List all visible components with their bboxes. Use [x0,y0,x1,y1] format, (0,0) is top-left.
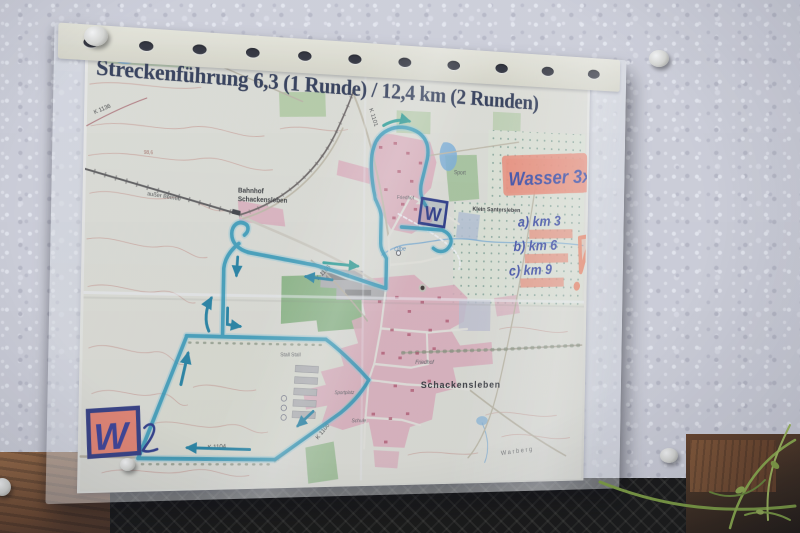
punch-hole [349,54,362,64]
km-mark: a) km 3 [518,214,562,231]
punch-hole [495,63,507,73]
label-sportplatz: Sportplatz [335,390,355,396]
water-note-box: Wasser 3x [502,153,589,197]
label-sport: Sport [454,170,466,176]
punch-hole [542,66,554,76]
label-friedhof-south: Friedhof [415,360,435,366]
km-mark: c) km 9 [509,262,553,279]
topographic-map: Bahnhof Schackensleben außer Betrieb Kle… [79,48,589,491]
label-stall: Stall Stall [280,352,301,358]
km-mark: b) km 6 [513,238,557,255]
plant-vines [590,420,800,533]
punch-hole [447,60,460,70]
photo-scene: Bahnhof Schackensleben außer Betrieb Kle… [0,0,800,533]
pushpin-top-left [84,26,108,46]
punch-hole [139,41,153,52]
water-station-north: W [419,198,447,227]
label-elevation: 98,6 [144,150,154,156]
label-bahnhof: Bahnhof [238,188,264,196]
punch-hole [193,44,207,55]
label-schule: Schule [351,418,366,424]
label-schackensleben: Schackensleben [421,380,501,391]
plastic-sleeve: Bahnhof Schackensleben außer Betrieb Kle… [45,22,626,504]
punch-hole [246,48,260,58]
label-friedhof-north: Friedhof [397,195,415,201]
pushpin-bottom-left [120,458,135,471]
map-sheet: Bahnhof Schackensleben außer Betrieb Kle… [77,46,590,493]
punch-hole [588,69,600,79]
water-station-south: W [88,408,139,459]
punch-hole [398,57,411,67]
water-note-text: Wasser 3x [508,166,588,190]
pushpin-bottom-right [660,448,678,463]
label-olbe: Olbe [394,246,406,253]
water-station-w-label: W [93,414,132,458]
pushpin-top-right [649,50,669,67]
punch-hole [298,51,311,61]
water-station-w-label: W [423,202,443,226]
